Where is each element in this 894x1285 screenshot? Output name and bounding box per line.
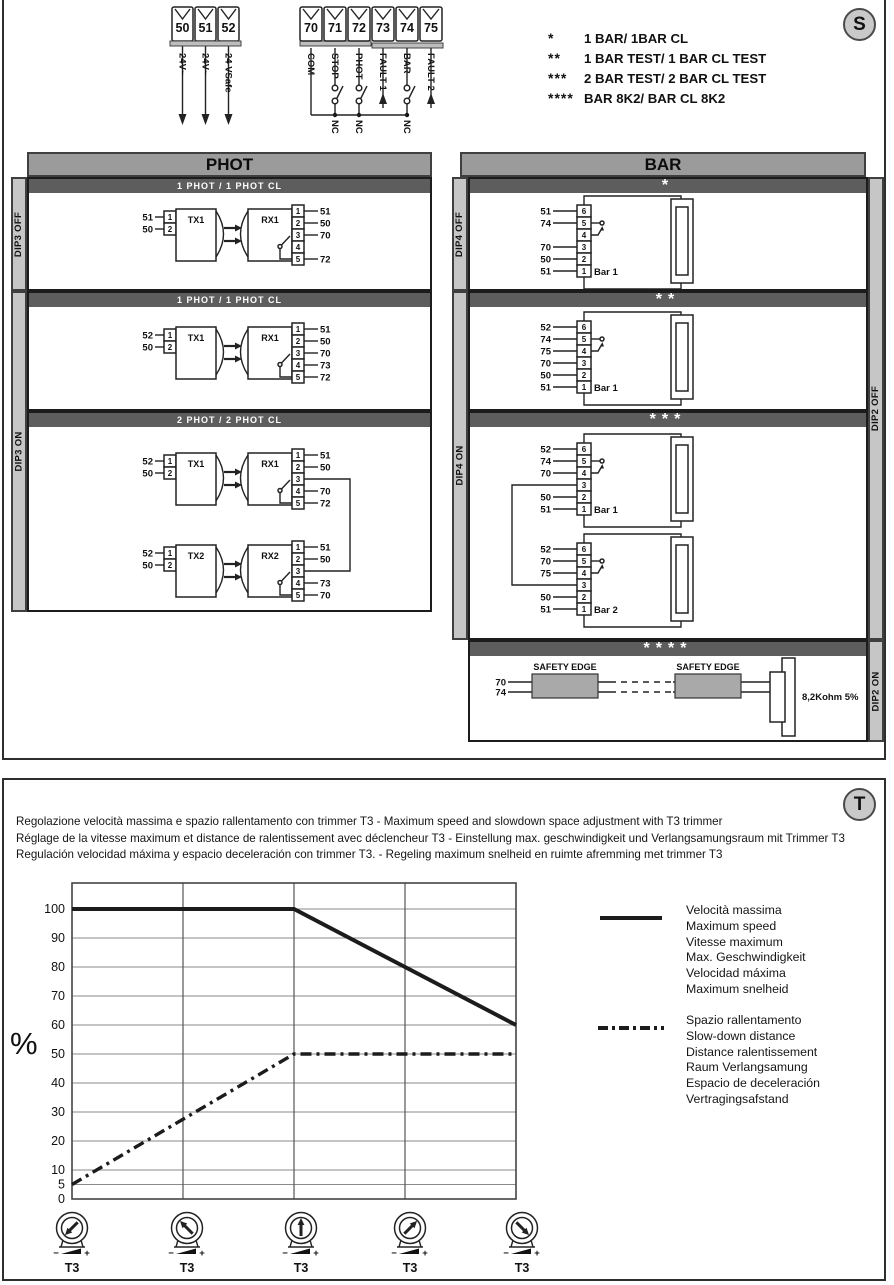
rx-pin-number: 3 bbox=[296, 231, 301, 240]
legend-line: Vitesse maximum bbox=[686, 935, 806, 951]
bar-pin-number: 5 bbox=[582, 219, 587, 228]
wire-label: 50 bbox=[142, 561, 153, 572]
bar-section-2: ** 652574475370250151Bar 1 bbox=[468, 291, 868, 411]
rx-pin-number: 2 bbox=[296, 337, 301, 346]
edge-profile-inner bbox=[770, 672, 785, 722]
solid-line-sample bbox=[600, 916, 662, 920]
legend-row: **1 BAR TEST/ 1 BAR CL TEST bbox=[548, 48, 766, 68]
wire-label: 52 bbox=[142, 331, 153, 342]
trimmer-positions: −+T3−+T3−+T3−+T3−+T3 bbox=[28, 1206, 558, 1282]
bar-diagram-2: 652574475370250151Bar 1 bbox=[470, 307, 866, 409]
tx-label: TX1 bbox=[188, 459, 205, 469]
y-tick-label: 0 bbox=[58, 1192, 65, 1206]
wire-label: 70 bbox=[320, 591, 331, 602]
rx-lens bbox=[241, 547, 249, 593]
y-tick-label: 10 bbox=[51, 1163, 65, 1177]
wire-label: 51 bbox=[142, 213, 153, 224]
dip3-on-label: DIP3 ON bbox=[14, 431, 25, 471]
bar-pin-number: 4 bbox=[582, 231, 587, 240]
rx-label: RX2 bbox=[261, 551, 279, 561]
dip4-off-label: DIP4 OFF bbox=[455, 211, 466, 256]
terminal-function-label: 24V~ bbox=[177, 53, 188, 76]
bar-diagram-1: 6515744370250151Bar 1 bbox=[470, 193, 866, 289]
dip3-off-label: DIP3 OFF bbox=[14, 211, 25, 256]
dip3-off-strip: DIP3 OFF bbox=[11, 177, 27, 291]
minus-sign: − bbox=[391, 1248, 397, 1259]
bar-diagram-3: 6525744703250151Bar 16525704753250151Bar… bbox=[470, 427, 866, 638]
rx-pin-number: 2 bbox=[296, 463, 301, 472]
ramp-wedge bbox=[61, 1249, 81, 1255]
safety-edge-8k2-diagram: 7074SAFETY EDGESAFETY EDGE8,2Kohm 5% bbox=[495, 658, 859, 736]
edge-profile-inner bbox=[676, 323, 688, 391]
legend-row: ***2 BAR TEST/ 2 BAR CL TEST bbox=[548, 68, 766, 88]
terminal-function-label: 24V~ bbox=[200, 53, 211, 76]
bar-pin-number: 3 bbox=[582, 581, 587, 590]
trimmer-label: T3 bbox=[403, 1261, 418, 1275]
trimmer-t3-icon: −+T3 bbox=[168, 1213, 205, 1276]
legend-line: Maximum snelheid bbox=[686, 982, 806, 998]
trimmer-t3-icon: −+T3 bbox=[391, 1213, 428, 1276]
wire-label: 50 bbox=[320, 337, 331, 348]
tx-pin-number: 2 bbox=[168, 343, 173, 352]
bar-pin-number: 3 bbox=[582, 359, 587, 368]
wire-label: 50 bbox=[540, 493, 551, 504]
wire-label: 52 bbox=[142, 549, 153, 560]
tx-lens bbox=[216, 211, 224, 257]
tx-pin-number: 1 bbox=[168, 213, 173, 222]
wire-label: 51 bbox=[320, 451, 331, 462]
phot-diagram-3: 152250TX1RX11512503470572152250TX2RX2151… bbox=[29, 427, 430, 610]
terminal-block-24v-group: 5024V~5124V~5224 VSafe bbox=[170, 7, 241, 125]
edge-profile-inner bbox=[676, 445, 688, 513]
terminal-number: 75 bbox=[424, 21, 438, 35]
minus-sign: − bbox=[503, 1248, 509, 1259]
bar-name: Bar 1 bbox=[594, 267, 618, 278]
ramp-wedge bbox=[176, 1249, 196, 1255]
wire-label: 51 bbox=[540, 383, 551, 394]
bar-pin-number: 2 bbox=[582, 493, 587, 502]
dashdot-line-sample bbox=[598, 1026, 664, 1030]
safety-edge-block bbox=[675, 674, 741, 698]
dip4-off-strip: DIP4 OFF bbox=[452, 177, 468, 291]
trimmer-description: Regolazione velocità massima e spazio ra… bbox=[16, 814, 845, 864]
rx-pin-number: 5 bbox=[296, 255, 301, 264]
wire-label: 51 bbox=[540, 267, 551, 278]
txrx-pair: 152250TX2RX21512503473570 bbox=[142, 541, 331, 602]
section-s-badge: S bbox=[843, 8, 876, 41]
dip4-on-label: DIP4 ON bbox=[455, 445, 466, 485]
wire-label: 50 bbox=[540, 255, 551, 266]
rx-pin-number: 1 bbox=[296, 207, 301, 216]
wire-label: 50 bbox=[142, 343, 153, 354]
bracket-top bbox=[584, 534, 681, 543]
bar-pin-number: 2 bbox=[582, 593, 587, 602]
legend-line: Vertragingsafstand bbox=[686, 1092, 820, 1108]
wire-label: 50 bbox=[540, 593, 551, 604]
y-tick-label: 70 bbox=[51, 989, 65, 1003]
nc-label: NC bbox=[401, 120, 412, 134]
bar-section-4: **** 7074SAFETY EDGESAFETY EDGE8,2Kohm 5… bbox=[468, 640, 868, 742]
terminal-number: 71 bbox=[328, 21, 342, 35]
dip2-off-strip: DIP2 OFF bbox=[868, 177, 884, 640]
dip2-on-strip: DIP2 ON bbox=[868, 640, 884, 742]
bracket-top bbox=[584, 434, 681, 443]
bar-pin-number: 6 bbox=[582, 545, 587, 554]
bar-section-4-header: **** bbox=[470, 642, 866, 656]
legend-row: *1 BAR/ 1BAR CL bbox=[548, 28, 766, 48]
wire-label: 52 bbox=[540, 545, 551, 556]
ramp-wedge bbox=[290, 1249, 310, 1255]
rx-lens bbox=[241, 329, 249, 375]
description-line-es-nl: Regulación velocidad máxima y espacio de… bbox=[16, 847, 845, 864]
wire-label: 50 bbox=[320, 463, 331, 474]
wire-label: 74 bbox=[495, 688, 506, 699]
txrx-pair: 152250TX1RX1151250370473572 bbox=[142, 323, 331, 384]
wire-label: 50 bbox=[540, 371, 551, 382]
legend-line: Slow-down distance bbox=[686, 1029, 820, 1045]
rx-pin-number: 3 bbox=[296, 475, 301, 484]
plus-sign: + bbox=[313, 1248, 319, 1259]
y-tick-label: 30 bbox=[51, 1105, 65, 1119]
tx-lens bbox=[216, 455, 224, 501]
legend-label: 1 BAR/ 1BAR CL bbox=[584, 31, 688, 46]
bar-pin-number: 1 bbox=[582, 267, 587, 276]
rx-pin-number: 1 bbox=[296, 451, 301, 460]
rx-pin-number: 2 bbox=[296, 219, 301, 228]
legend-label: 2 BAR TEST/ 2 BAR CL TEST bbox=[584, 71, 766, 86]
tx-pin-number: 1 bbox=[168, 457, 173, 466]
rx-pin-number: 5 bbox=[296, 499, 301, 508]
legend-slowdown: Spazio rallentamento Slow-down distance … bbox=[686, 1013, 820, 1108]
nc-label: NC bbox=[329, 120, 340, 134]
rx-pin-number: 2 bbox=[296, 555, 301, 564]
wire-label: 51 bbox=[320, 543, 331, 554]
speed-slowdown-chart: 05102030405060708090100 bbox=[20, 878, 530, 1212]
bar-name: Bar 1 bbox=[594, 505, 618, 516]
edge-profile-inner bbox=[676, 207, 688, 275]
wire-label: 50 bbox=[142, 469, 153, 480]
bar-section-3: *** 6525744703250151Bar 1652570475325015… bbox=[468, 411, 868, 640]
trimmer-label: T3 bbox=[515, 1261, 530, 1275]
legend-row: ****BAR 8K2/ BAR CL 8K2 bbox=[548, 88, 766, 108]
txrx-pair: 152250TX1RX11512503470572 bbox=[142, 449, 331, 510]
wire-label: 51 bbox=[320, 207, 331, 218]
legend-line: Max. Geschwindigkeit bbox=[686, 950, 806, 966]
terminal-number: 51 bbox=[199, 21, 213, 35]
dip4-on-strip: DIP4 ON bbox=[452, 291, 468, 640]
wire-label: 51 bbox=[540, 207, 551, 218]
dip2-on-label: DIP2 ON bbox=[871, 671, 882, 711]
dip2-off-label: DIP2 OFF bbox=[871, 386, 882, 431]
wire-label: 50 bbox=[320, 555, 331, 566]
bar-pin-number: 5 bbox=[582, 457, 587, 466]
wire-label: 74 bbox=[540, 457, 551, 468]
phot-section-3: 2 PHOT / 2 PHOT CL 152250TX1RX1151250347… bbox=[27, 411, 432, 612]
stars: **** bbox=[548, 90, 584, 106]
relay-contact bbox=[591, 566, 602, 573]
stars: * bbox=[548, 30, 584, 46]
bar-config-legend: *1 BAR/ 1BAR CL **1 BAR TEST/ 1 BAR CL T… bbox=[548, 28, 766, 108]
y-tick-label: 40 bbox=[51, 1076, 65, 1090]
wire-label: 52 bbox=[142, 457, 153, 468]
wire-label: 70 bbox=[320, 349, 331, 360]
bracket-bottom bbox=[584, 393, 681, 405]
y-tick-label: 5 bbox=[58, 1178, 65, 1192]
minus-sign: − bbox=[168, 1248, 174, 1259]
description-line-it-en: Regolazione velocità massima e spazio ra… bbox=[16, 814, 845, 831]
bracket-top bbox=[584, 312, 681, 321]
txrx-pair: 151250TX1RX11512503704572 bbox=[142, 205, 331, 266]
legend-line: Raum Verlangsamung bbox=[686, 1060, 820, 1076]
legend-line: Distance ralentissement bbox=[686, 1045, 820, 1061]
tx-lens bbox=[216, 547, 224, 593]
bar-section-1-header: * bbox=[470, 179, 866, 193]
bar-pin-number: 6 bbox=[582, 323, 587, 332]
wire-label: 70 bbox=[540, 243, 551, 254]
minus-sign: − bbox=[53, 1248, 59, 1259]
safety-edge-label: SAFETY EDGE bbox=[533, 662, 596, 672]
phot-diagram-1: 151250TX1RX11512503704572 bbox=[29, 193, 430, 289]
bar-pin-number: 4 bbox=[582, 569, 587, 578]
rx-label: RX1 bbox=[261, 215, 279, 225]
wire-label: 74 bbox=[540, 335, 551, 346]
bar-pin-number: 1 bbox=[582, 605, 587, 614]
wire-label: 51 bbox=[540, 505, 551, 516]
tx-pin-number: 1 bbox=[168, 549, 173, 558]
wire-label: 72 bbox=[320, 255, 331, 266]
phot-section-1-header: 1 PHOT / 1 PHOT CL bbox=[29, 179, 430, 193]
wire-label: 70 bbox=[320, 231, 331, 242]
stars: ** bbox=[548, 50, 584, 66]
legend-line: Espacio de deceleración bbox=[686, 1076, 820, 1092]
bar-connector: 6515744370250151Bar 1 bbox=[540, 196, 693, 289]
phot-section-1: 1 PHOT / 1 PHOT CL 151250TX1RX1151250370… bbox=[27, 177, 432, 291]
rx-pin-number: 3 bbox=[296, 349, 301, 358]
terminal-number: 74 bbox=[400, 21, 414, 35]
rx-pin-number: 4 bbox=[296, 243, 301, 252]
section-t-badge: T bbox=[843, 788, 876, 821]
rx-pin-number: 5 bbox=[296, 591, 301, 600]
edge-profile-inner bbox=[676, 545, 688, 613]
plus-sign: + bbox=[534, 1248, 540, 1259]
plus-sign: + bbox=[422, 1248, 428, 1259]
rx-lens bbox=[241, 211, 249, 257]
safety-edge-block bbox=[532, 674, 598, 698]
minus-sign: − bbox=[282, 1248, 288, 1259]
manual-page: S 5024V~5124V~5224 VSafe 70COM71STOPNC72… bbox=[0, 0, 894, 1285]
description-line-fr-de: Réglage de la vitesse maximum et distanc… bbox=[16, 831, 845, 848]
rx-label: RX1 bbox=[261, 333, 279, 343]
legend-line: Maximum speed bbox=[686, 919, 806, 935]
legend-line: Velocità massima bbox=[686, 903, 806, 919]
y-tick-label: 100 bbox=[44, 902, 65, 916]
bar-pin-number: 5 bbox=[582, 557, 587, 566]
bar-connector: 652574475370250151Bar 1 bbox=[540, 312, 693, 405]
bracket-bottom bbox=[584, 515, 681, 527]
bar-diagram-4: 7074SAFETY EDGESAFETY EDGE8,2Kohm 5% bbox=[470, 656, 866, 740]
wire-label: 52 bbox=[540, 323, 551, 334]
terminal-block-safety-group: 70COM71STOPNC72PHOTNC73FAULT 174BARNC75F… bbox=[300, 7, 443, 134]
bar-section-3-header: *** bbox=[470, 413, 866, 427]
rx-label: RX1 bbox=[261, 459, 279, 469]
terminal-number: 52 bbox=[222, 21, 236, 35]
legend-label: 1 BAR TEST/ 1 BAR CL TEST bbox=[584, 51, 766, 66]
wire-label: 70 bbox=[540, 359, 551, 370]
wire-label: 73 bbox=[320, 579, 331, 590]
ramp-wedge bbox=[511, 1249, 531, 1255]
bar-section-2-header: ** bbox=[470, 293, 866, 307]
wire-label: 72 bbox=[320, 373, 331, 384]
wire-label: 72 bbox=[320, 499, 331, 510]
wire-label: 50 bbox=[320, 219, 331, 230]
rx-pin-number: 4 bbox=[296, 579, 301, 588]
resistor-label: 8,2Kohm 5% bbox=[802, 692, 859, 703]
wire-label: 75 bbox=[540, 347, 551, 358]
plus-sign: + bbox=[199, 1248, 205, 1259]
wire-label: 51 bbox=[540, 605, 551, 616]
phot-section-3-header: 2 PHOT / 2 PHOT CL bbox=[29, 413, 430, 427]
rx-pin-number: 1 bbox=[296, 543, 301, 552]
legend-line: Spazio rallentamento bbox=[686, 1013, 820, 1029]
terminal-number: 73 bbox=[376, 21, 390, 35]
bar-connector: 6525704753250151Bar 2 bbox=[540, 534, 693, 627]
rx-pin-number: 5 bbox=[296, 373, 301, 382]
rx-pin-number: 4 bbox=[296, 361, 301, 370]
trimmer-t3-icon: −+T3 bbox=[282, 1213, 319, 1276]
legend-max-speed: Velocità massima Maximum speed Vitesse m… bbox=[686, 903, 806, 998]
wire-label: 73 bbox=[320, 361, 331, 372]
y-tick-label: 90 bbox=[51, 931, 65, 945]
rx-pin-number: 4 bbox=[296, 487, 301, 496]
wire-label: 50 bbox=[142, 225, 153, 236]
wire-label: 70 bbox=[540, 557, 551, 568]
bar-pin-number: 2 bbox=[582, 255, 587, 264]
trimmer-label: T3 bbox=[294, 1261, 309, 1275]
nc-label: NC bbox=[353, 120, 364, 134]
terminal-number: 70 bbox=[304, 21, 318, 35]
bar-name: Bar 2 bbox=[594, 605, 618, 616]
tx-pin-number: 1 bbox=[168, 331, 173, 340]
relay-contact bbox=[591, 344, 602, 351]
safety-edge-label: SAFETY EDGE bbox=[676, 662, 739, 672]
terminal-number: 50 bbox=[176, 21, 190, 35]
bar-pin-number: 1 bbox=[582, 505, 587, 514]
bar-section-1: * 6515744370250151Bar 1 bbox=[468, 177, 868, 291]
y-tick-label: 60 bbox=[51, 1018, 65, 1032]
terminal-function-label: 24 VSafe bbox=[223, 53, 234, 93]
plus-sign: + bbox=[84, 1248, 90, 1259]
rx-pin-number: 3 bbox=[296, 567, 301, 576]
wire-label: 74 bbox=[540, 219, 551, 230]
bar-pin-number: 3 bbox=[582, 243, 587, 252]
wire-label: 70 bbox=[320, 487, 331, 498]
bar-pin-number: 5 bbox=[582, 335, 587, 344]
y-tick-label: 80 bbox=[51, 960, 65, 974]
y-tick-label: 20 bbox=[51, 1134, 65, 1148]
relay-contact bbox=[591, 466, 602, 473]
trimmer-t3-icon: −+T3 bbox=[53, 1213, 90, 1276]
bracket-bottom bbox=[584, 615, 681, 627]
tx-pin-number: 2 bbox=[168, 561, 173, 570]
dip3-on-strip: DIP3 ON bbox=[11, 291, 27, 612]
tx-pin-number: 2 bbox=[168, 469, 173, 478]
phot-diagram-2: 152250TX1RX1151250370473572 bbox=[29, 307, 430, 409]
rx-lens bbox=[241, 455, 249, 501]
trimmer-t3-icon: −+T3 bbox=[503, 1213, 540, 1276]
phot-section-2-header: 1 PHOT / 1 PHOT CL bbox=[29, 293, 430, 307]
trimmer-label: T3 bbox=[65, 1261, 80, 1275]
relay-contact bbox=[591, 228, 602, 235]
terminal-block-safety: 70COM71STOPNC72PHOTNC73FAULT 174BARNC75F… bbox=[298, 5, 456, 145]
wire-label: 70 bbox=[540, 469, 551, 480]
terminal-block-24v: 5024V~5124V~5224 VSafe bbox=[168, 5, 258, 140]
tx-pin-number: 2 bbox=[168, 225, 173, 234]
chart-plot: 05102030405060708090100 bbox=[44, 883, 516, 1206]
bar-pin-number: 3 bbox=[582, 481, 587, 490]
bar-connector: 6525744703250151Bar 1 bbox=[540, 434, 693, 527]
tx-label: TX1 bbox=[188, 333, 205, 343]
tx-label: TX2 bbox=[188, 551, 205, 561]
bar-pin-number: 4 bbox=[582, 347, 587, 356]
wire-label: 51 bbox=[320, 325, 331, 336]
bar-pin-number: 4 bbox=[582, 469, 587, 478]
ramp-wedge bbox=[399, 1249, 419, 1255]
legend-line: Velocidad máxima bbox=[686, 966, 806, 982]
phot-panel-title: PHOT bbox=[27, 152, 432, 177]
trimmer-label: T3 bbox=[180, 1261, 195, 1275]
bar-pin-number: 2 bbox=[582, 371, 587, 380]
wire-label: 52 bbox=[540, 445, 551, 456]
bar-name: Bar 1 bbox=[594, 383, 618, 394]
rx-pin-number: 1 bbox=[296, 325, 301, 334]
stars: *** bbox=[548, 70, 584, 86]
terminal-number: 72 bbox=[352, 21, 366, 35]
bar-pin-number: 1 bbox=[582, 383, 587, 392]
bar-pin-number: 6 bbox=[582, 445, 587, 454]
tx-label: TX1 bbox=[188, 215, 205, 225]
y-tick-label: 50 bbox=[51, 1047, 65, 1061]
tx-lens bbox=[216, 329, 224, 375]
phot-section-2: 1 PHOT / 1 PHOT CL 152250TX1RX1151250370… bbox=[27, 291, 432, 411]
wire-label: 75 bbox=[540, 569, 551, 580]
bar-pin-number: 6 bbox=[582, 207, 587, 216]
legend-label: BAR 8K2/ BAR CL 8K2 bbox=[584, 91, 725, 106]
